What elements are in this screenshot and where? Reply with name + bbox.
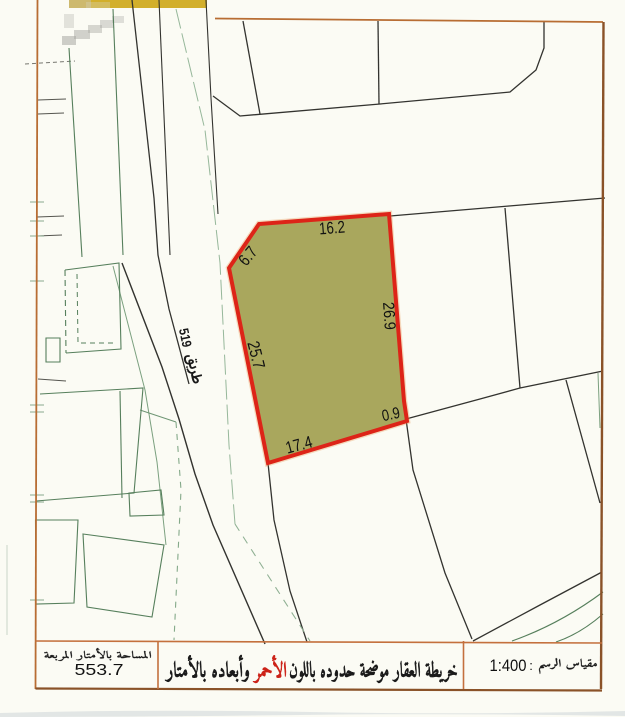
svg-text:26.9: 26.9 [379,301,398,330]
svg-text:1:400: 1:400 [490,656,527,675]
svg-text:16.2: 16.2 [318,218,345,239]
svg-text:553.7: 553.7 [75,662,124,679]
svg-text::: : [529,658,533,673]
